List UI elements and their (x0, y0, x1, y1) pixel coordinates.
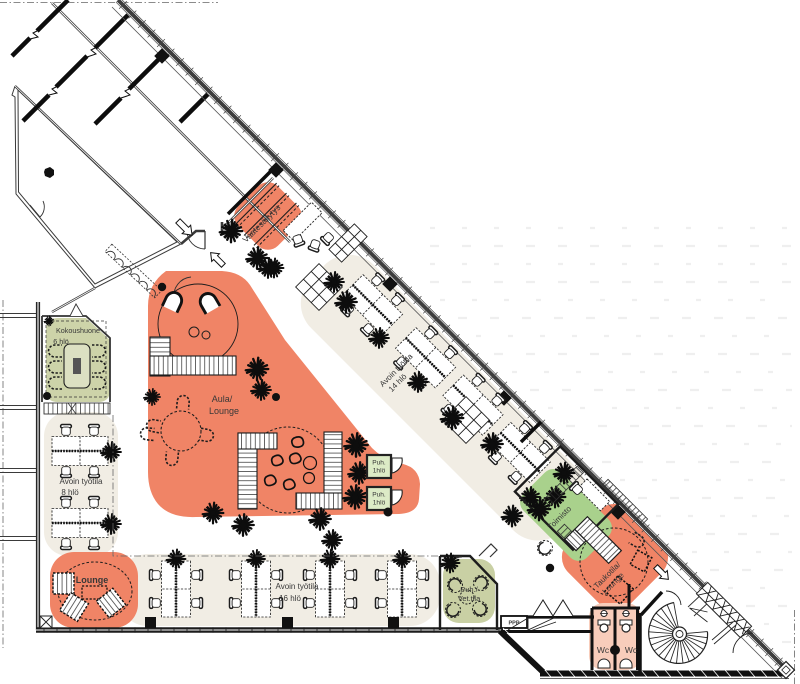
svg-text:Avoin työtila: Avoin työtila (60, 477, 104, 486)
svg-text:6 hlö: 6 hlö (53, 337, 69, 346)
svg-text:Puh./: Puh./ (460, 585, 478, 594)
svg-text:Puh.: Puh. (372, 460, 386, 467)
svg-text:Wc: Wc (625, 645, 638, 655)
svg-text:1hlö: 1hlö (373, 468, 386, 475)
svg-text:Wc: Wc (597, 645, 610, 655)
svg-text:Lounge: Lounge (209, 406, 239, 416)
svg-text:Aula/: Aula/ (212, 394, 233, 404)
svg-text:Kokoushuone: Kokoushuone (56, 326, 100, 335)
svg-text:8 hlö: 8 hlö (61, 488, 79, 497)
svg-text:Vet.tila: Vet.tila (458, 594, 481, 603)
svg-text:Avoin työtila: Avoin työtila (276, 582, 320, 591)
svg-text:1hlö: 1hlö (373, 500, 386, 507)
svg-text:Puh.: Puh. (372, 492, 386, 499)
svg-text:Lounge: Lounge (76, 575, 109, 585)
svg-text:16 hlö: 16 hlö (279, 594, 301, 603)
